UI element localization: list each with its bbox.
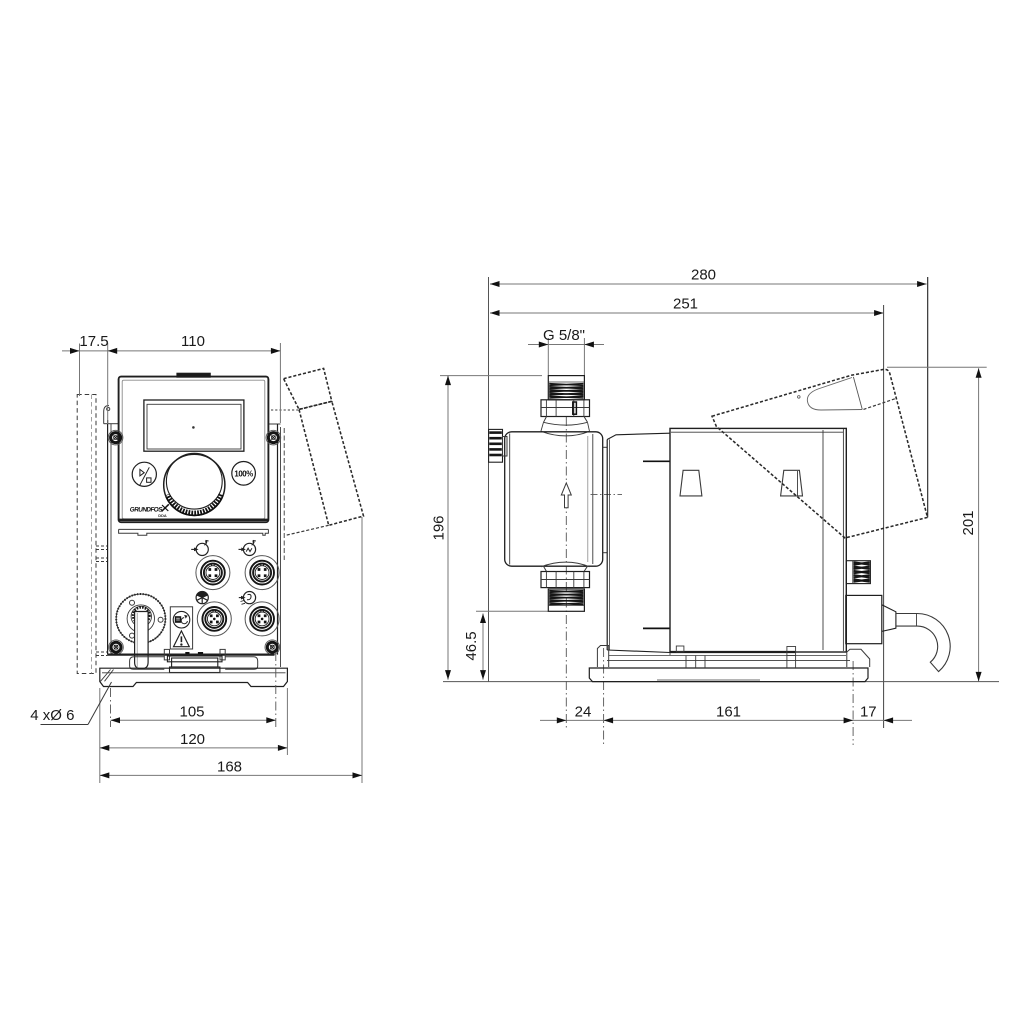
svg-text:24: 24 [575, 703, 592, 720]
svg-text:17: 17 [860, 703, 877, 720]
svg-text:201: 201 [960, 510, 977, 535]
svg-text:100%: 100% [234, 470, 253, 479]
svg-text:280: 280 [691, 266, 716, 283]
svg-text:120: 120 [180, 731, 205, 748]
svg-text:4 xØ 6: 4 xØ 6 [30, 707, 74, 724]
svg-text:161: 161 [716, 703, 741, 720]
svg-text:105: 105 [179, 703, 204, 720]
svg-text:110: 110 [181, 333, 205, 350]
svg-text:17.5: 17.5 [79, 333, 108, 350]
svg-text:46.5: 46.5 [463, 631, 480, 660]
svg-text:168: 168 [217, 758, 242, 775]
svg-text:251: 251 [673, 295, 698, 312]
svg-text:196: 196 [431, 515, 448, 540]
svg-text:G 5/8": G 5/8" [543, 327, 585, 344]
svg-text:DDA: DDA [158, 513, 167, 518]
